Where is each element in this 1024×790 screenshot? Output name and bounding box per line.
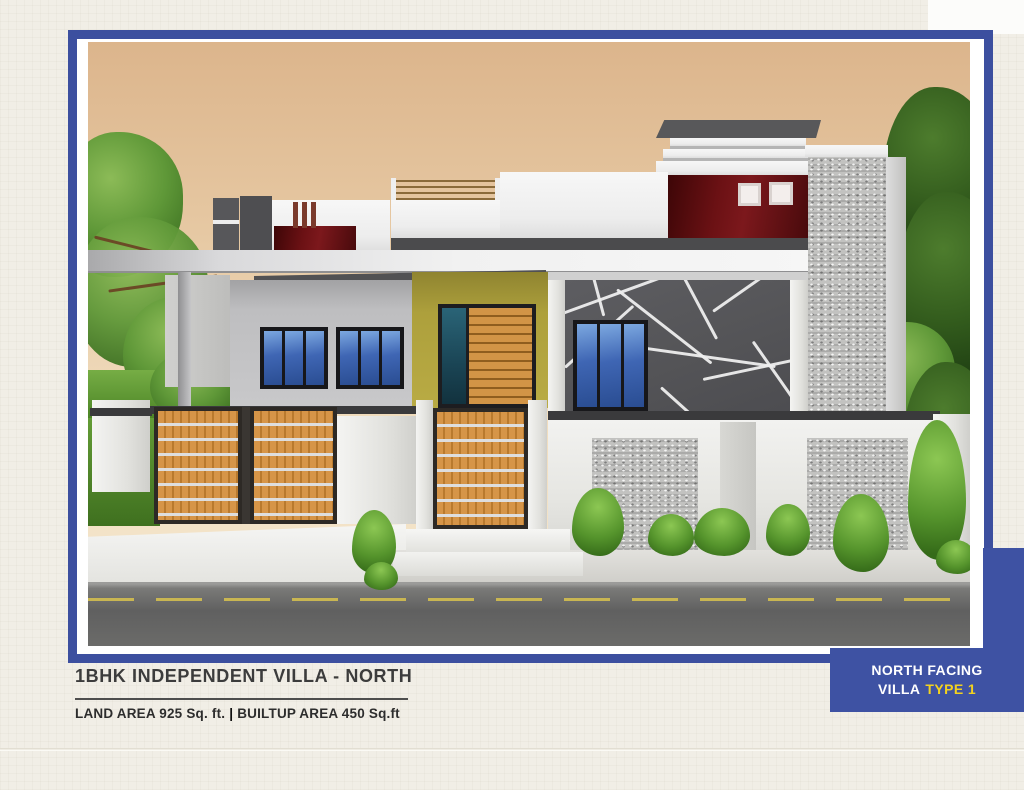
crown-top-slab xyxy=(656,120,821,138)
badge-line2-prefix: VILLA xyxy=(878,680,920,699)
bottom-divider xyxy=(0,748,1024,751)
villa-elevation-illustration xyxy=(88,42,970,646)
entrance-step xyxy=(406,529,570,552)
porch-side-wall xyxy=(165,275,230,387)
parapet-box xyxy=(240,196,272,252)
separator: | xyxy=(225,706,237,721)
porch-column xyxy=(178,272,191,422)
window-pane xyxy=(600,324,620,407)
main-door-wood xyxy=(469,308,532,404)
window-pane xyxy=(577,324,597,407)
crown-step xyxy=(670,138,806,149)
badge-line2-highlight: TYPE 1 xyxy=(925,680,976,699)
gate-pillar xyxy=(528,400,547,529)
shrub xyxy=(936,540,970,574)
parapet-stick xyxy=(293,202,298,228)
maroon-panel-square xyxy=(738,183,761,206)
window-pane xyxy=(624,324,644,407)
villa-type-badge: NORTH FACING VILLA TYPE 1 xyxy=(830,648,1024,712)
flyer-title: 1BHK INDEPENDENT VILLA - NORTH xyxy=(75,666,635,687)
window-pane xyxy=(264,331,282,385)
window-pane xyxy=(285,331,303,385)
road-center-line xyxy=(88,598,970,601)
right-side-wall xyxy=(886,157,906,418)
fascia-band xyxy=(391,200,500,238)
entrance-step xyxy=(393,552,583,576)
shrub xyxy=(364,562,398,590)
builtup-area-text: BUILTUP AREA 450 Sq.ft xyxy=(237,706,400,721)
stone-column xyxy=(808,157,886,418)
compound-rail xyxy=(548,411,940,420)
main-gate-left xyxy=(154,407,242,524)
compound-wall-segment xyxy=(337,416,418,524)
window-feature-wall xyxy=(573,320,648,411)
shrub xyxy=(694,508,750,556)
gate-pillar-cap xyxy=(90,408,152,416)
parapet-maroon-panel xyxy=(274,226,356,252)
flyer-page: 1BHK INDEPENDENT VILLA - NORTH LAND AREA… xyxy=(0,0,1024,790)
land-area-text: LAND AREA 925 Sq. ft. xyxy=(75,706,225,721)
gate-pillar xyxy=(416,400,433,529)
window-pane xyxy=(382,331,400,385)
window-pane xyxy=(361,331,379,385)
wall-corner-strip xyxy=(790,280,808,418)
door-sidelight-glass xyxy=(442,308,466,404)
parapet-stick xyxy=(302,202,307,228)
window-pane xyxy=(340,331,358,385)
parapet-stick xyxy=(311,202,316,228)
roof-railing xyxy=(391,178,502,201)
pedestrian-gate xyxy=(433,408,528,529)
window-left-2 xyxy=(336,327,404,389)
fascia-band xyxy=(500,172,668,238)
parapet-box xyxy=(213,198,239,252)
main-gate-right xyxy=(250,407,337,524)
title-underline xyxy=(75,698,408,700)
area-details: LAND AREA 925 Sq. ft.|BUILTUP AREA 450 S… xyxy=(75,706,635,721)
window-left-1 xyxy=(260,327,328,389)
porch-slab xyxy=(88,250,906,273)
badge-line1: NORTH FACING xyxy=(871,661,982,680)
window-pane xyxy=(306,331,324,385)
crown-step xyxy=(663,149,812,161)
maroon-panel-square xyxy=(769,182,793,205)
parapet-groove xyxy=(213,220,239,224)
gate-center-post xyxy=(242,407,250,524)
shrub xyxy=(648,514,694,556)
wall-pillar xyxy=(548,280,565,414)
crown-step xyxy=(656,161,819,175)
shrub xyxy=(766,504,810,556)
corner-notch xyxy=(928,0,1024,34)
road xyxy=(88,582,970,646)
badge-side-tab xyxy=(983,548,1024,658)
stone-column-cap xyxy=(805,145,888,157)
